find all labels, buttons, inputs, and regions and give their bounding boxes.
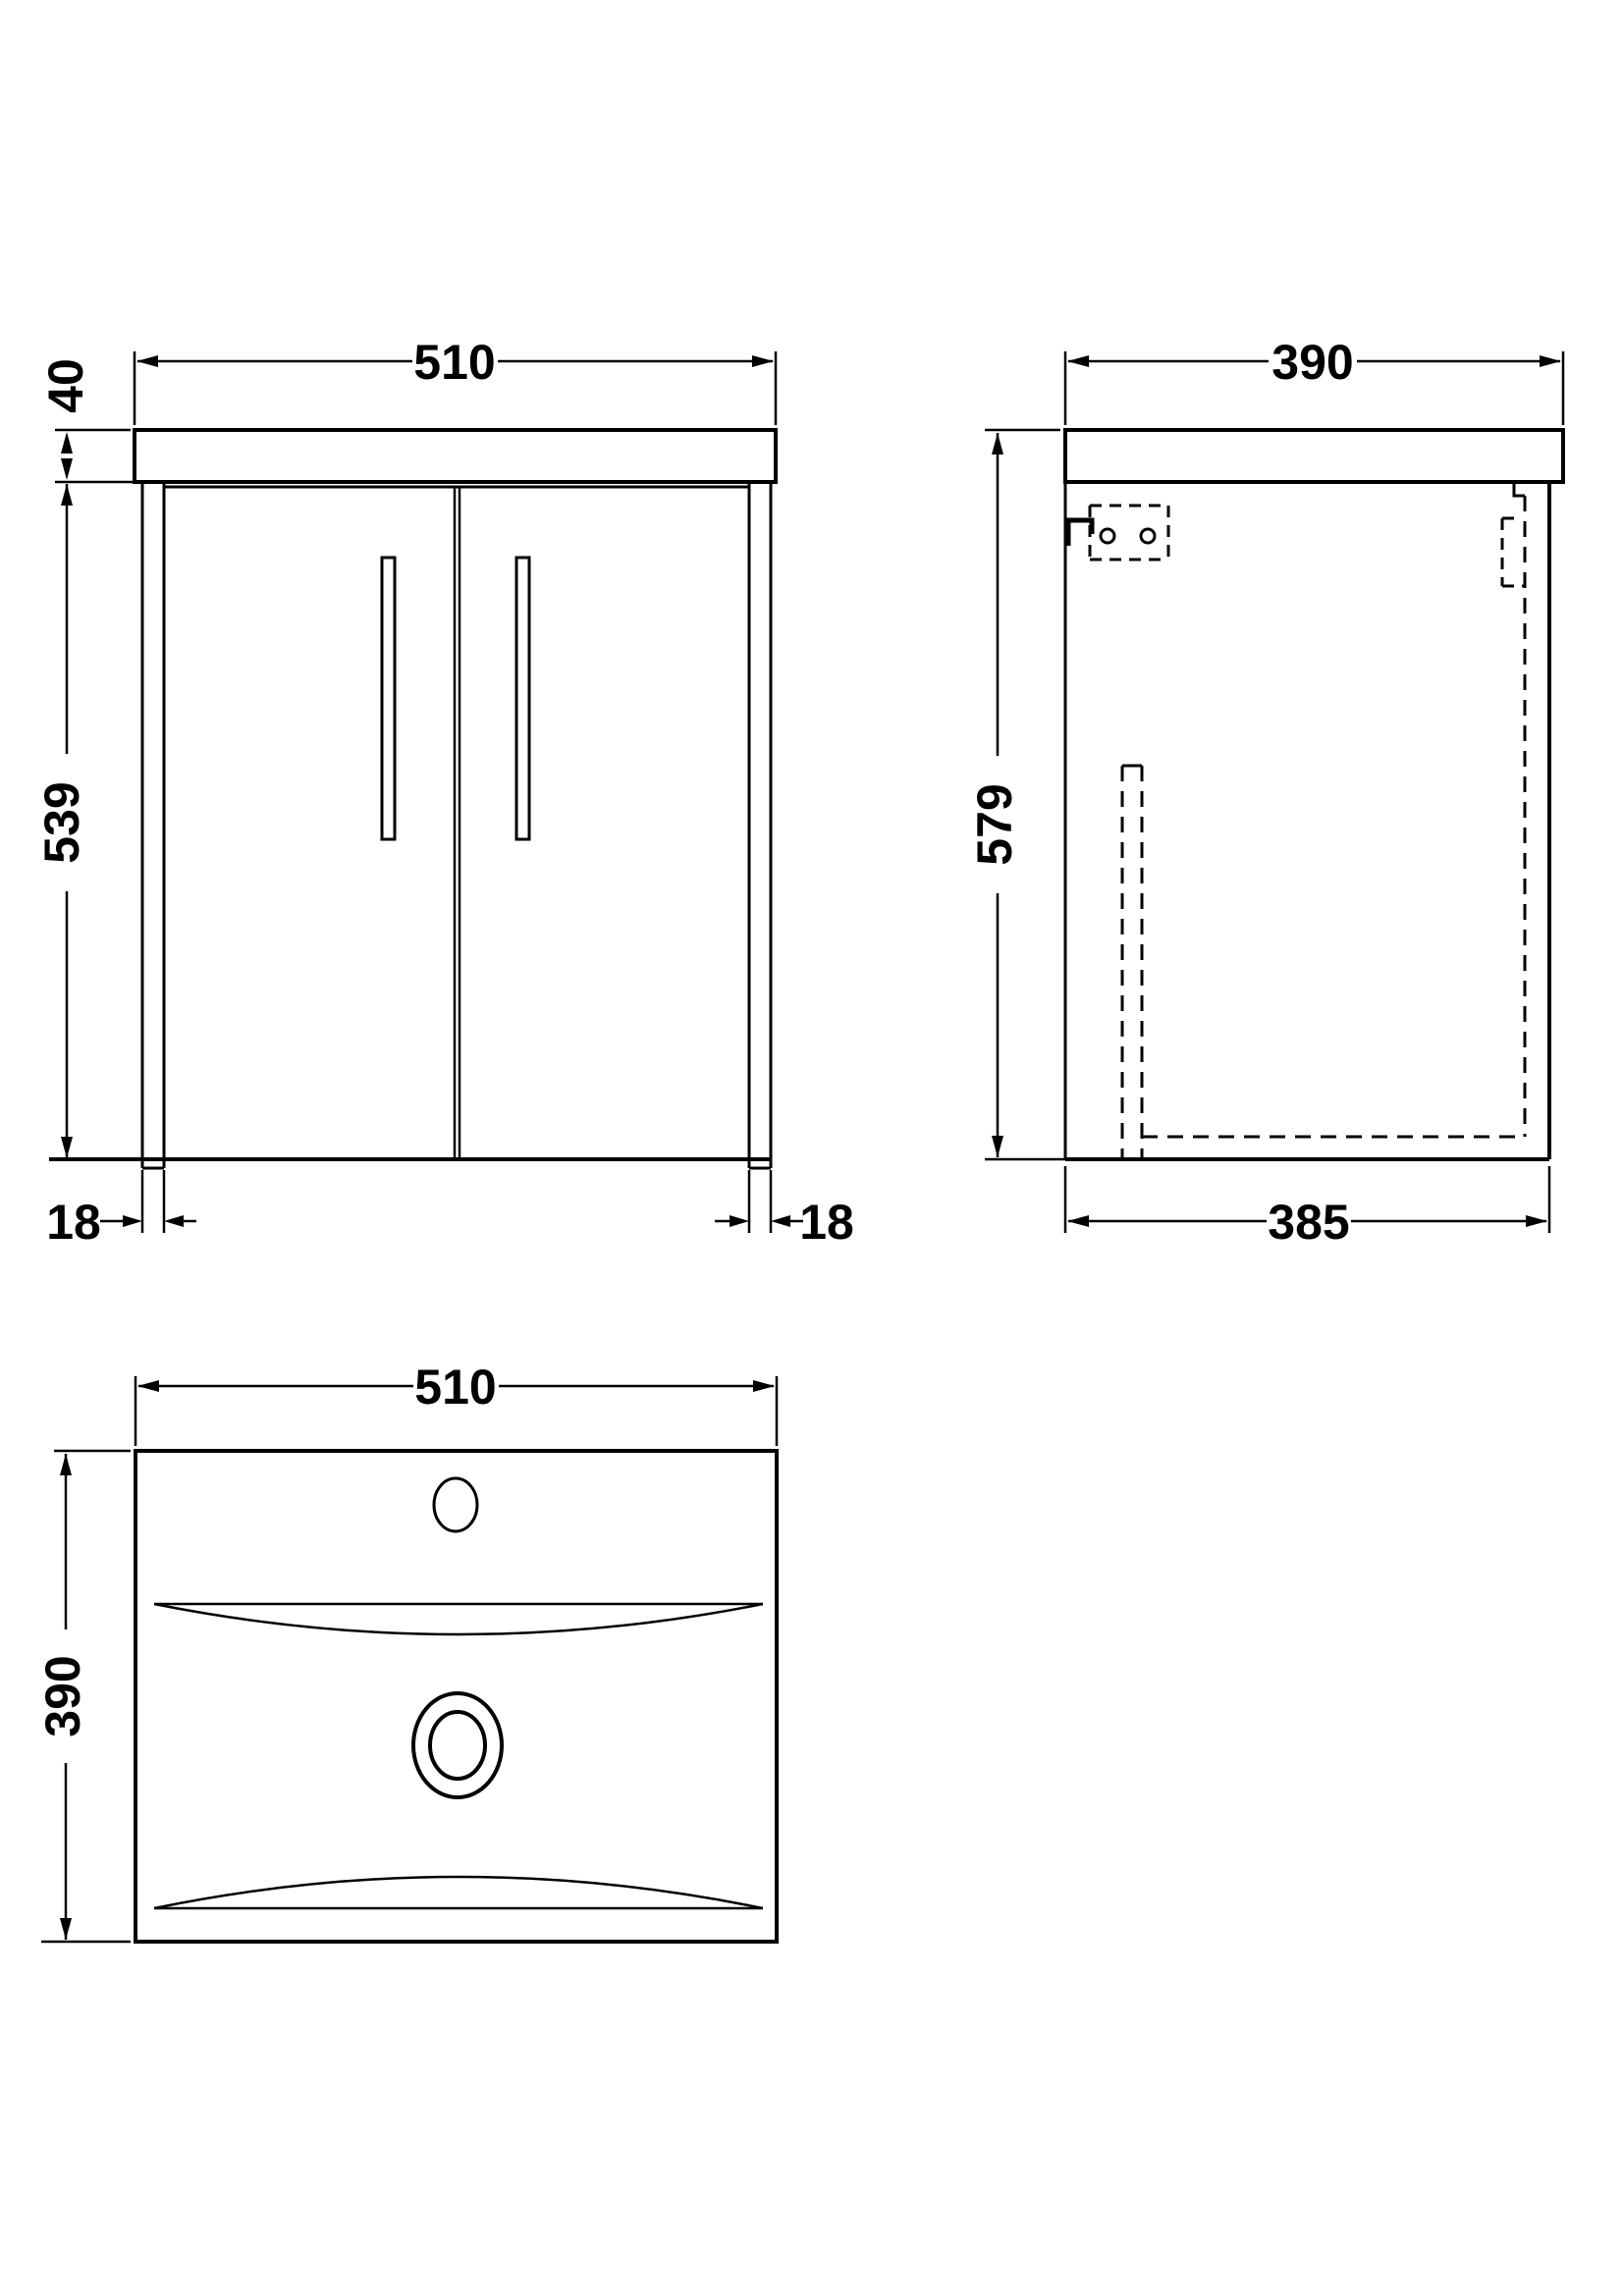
basin-plan-view: 510 390: [35, 1360, 777, 1942]
arrowhead-right-icon: [123, 1215, 142, 1227]
side-door-hidden-edge: [1122, 766, 1142, 1159]
arrowhead-left-icon: [771, 1215, 790, 1227]
bracket-screw-hole: [1101, 529, 1114, 543]
arrowhead-up-icon: [61, 484, 73, 506]
front-worktop-thickness-dimension: 40: [38, 358, 138, 482]
right-door-handle: [516, 558, 529, 839]
plan-depth-dim-label: 390: [35, 1655, 90, 1736]
front-right-panel-label: 18: [799, 1195, 854, 1250]
arrowhead-left-icon: [136, 355, 158, 367]
arrowhead-right-icon: [752, 355, 774, 367]
arrowhead-right-icon: [1526, 1215, 1547, 1227]
side-rear-bracket: [1502, 518, 1525, 586]
side-wall-bracket: [1068, 506, 1168, 560]
front-body-height-label: 539: [34, 781, 89, 863]
plan-depth-dimension: 390: [35, 1451, 131, 1942]
arrowhead-down-icon: [992, 1136, 1003, 1157]
arrowhead-left-icon: [1067, 355, 1089, 367]
front-left-panel-label: 18: [46, 1195, 101, 1250]
side-body-depth-label: 385: [1268, 1195, 1349, 1250]
arrowhead-right-icon: [753, 1380, 775, 1392]
side-body-depth-dimension: 385: [1065, 1166, 1549, 1250]
arrowhead-left-icon: [1067, 1215, 1089, 1227]
bracket-screw-hole: [1141, 529, 1155, 543]
arrowhead-left-icon: [164, 1215, 184, 1227]
front-right-panel-dimension: 18: [715, 1170, 854, 1250]
side-elevation-view: 390 579 385: [967, 335, 1563, 1250]
drawing-svg: 510 40 539: [0, 0, 1623, 2296]
bracket-hook: [1068, 520, 1092, 546]
front-elevation-view: 510 40 539: [34, 335, 854, 1250]
side-depth-dimension: 390: [1065, 335, 1563, 425]
arrowhead-down-icon: [61, 1137, 73, 1158]
front-width-dimension: 510: [135, 335, 776, 425]
basin-waste-drain: [413, 1693, 502, 1797]
arrowhead-down-icon: [61, 458, 73, 480]
front-left-panel-dimension: 18: [46, 1170, 196, 1250]
technical-drawing-page: 510 40 539: [0, 0, 1623, 2296]
arrowhead-left-icon: [137, 1380, 159, 1392]
front-body-height-dimension: 539: [34, 484, 89, 1159]
side-cabinet-body: [1065, 482, 1549, 1159]
front-worktop-thickness-label: 40: [38, 358, 93, 413]
left-door-handle: [382, 558, 395, 839]
front-worktop: [135, 430, 776, 482]
arrowhead-right-icon: [1540, 355, 1561, 367]
front-cabinet-body: [49, 482, 771, 1168]
arrowhead-down-icon: [60, 1918, 72, 1940]
arrowhead-up-icon: [992, 433, 1003, 454]
plan-width-dim-label: 510: [414, 1360, 496, 1415]
side-overall-height-dimension: 579: [967, 430, 1065, 1159]
front-width-dim-label: 510: [413, 335, 495, 390]
tap-hole: [434, 1478, 477, 1531]
side-overall-height-label: 579: [967, 783, 1022, 865]
side-depth-dim-label: 390: [1271, 335, 1353, 390]
arrowhead-up-icon: [61, 432, 73, 454]
arrowhead-right-icon: [730, 1215, 749, 1227]
arrowhead-up-icon: [60, 1454, 72, 1475]
side-worktop: [1065, 430, 1563, 482]
plan-width-dimension: 510: [135, 1360, 777, 1446]
